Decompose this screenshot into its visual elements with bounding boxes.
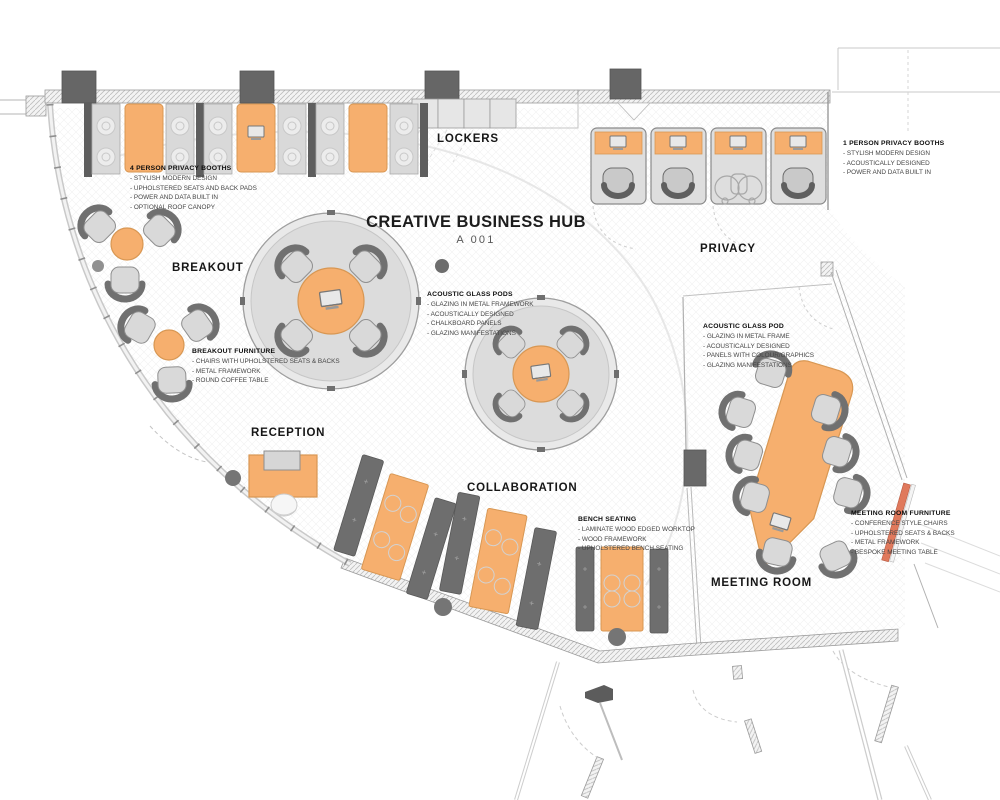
annotation-bench-seating: BENCH SEATING LAMINATE WOOD EDGED WORKTO… — [578, 515, 695, 554]
privacy-booth — [771, 128, 826, 204]
room-label-meeting-room: MEETING ROOM — [711, 577, 812, 589]
door-hardware — [585, 685, 613, 703]
annotation-meeting-room-furniture: MEETING ROOM FURNITURE CONFERENCE STYLE … — [851, 509, 955, 558]
coffee-table — [154, 330, 184, 360]
booth-chair — [783, 168, 813, 196]
privacy-booth-accessible — [711, 128, 766, 204]
bench-table-group — [576, 547, 668, 633]
column — [240, 71, 274, 103]
annotation-privacy-booths-1: 1 PERSON PRIVACY BOOTHS STYLISH MODERN D… — [843, 139, 944, 178]
column — [610, 69, 641, 99]
door-leaf — [745, 719, 762, 753]
room-label-lockers: LOCKERS — [437, 133, 499, 145]
column — [608, 628, 626, 646]
door-hinge — [732, 666, 742, 680]
side-table — [92, 260, 104, 272]
booth-table — [349, 104, 387, 172]
door-leaf — [875, 685, 899, 743]
column — [225, 470, 241, 486]
room-label-privacy: PRIVACY — [700, 243, 756, 255]
plan-title-block: CREATIVE BUSINESS HUB A 001 — [326, 213, 626, 246]
room-label-breakout: BREAKOUT — [172, 262, 244, 274]
annotation-privacy-booths-4: 4 PERSON PRIVACY BOOTHS STYLISH MODERN D… — [130, 164, 257, 213]
column — [435, 259, 449, 273]
door-leaf — [581, 757, 603, 799]
reception-monitor — [264, 451, 300, 470]
wall-pier — [684, 450, 706, 486]
booth-chair — [663, 168, 693, 196]
coffee-table — [111, 228, 143, 260]
annotation-breakout-furniture: BREAKOUT FURNITURE CHAIRS WITH UPHOLSTER… — [192, 347, 340, 386]
booth-table — [125, 104, 163, 172]
column — [62, 71, 96, 103]
annotation-acoustic-glass-pod: ACOUSTIC GLASS POD GLAZING IN METAL FRAM… — [703, 322, 814, 371]
room-label-reception: RECEPTION — [251, 427, 325, 439]
booth-chair — [603, 168, 633, 196]
room-label-collaboration: COLLABORATION — [467, 482, 577, 494]
annotation-acoustic-glass-pods: ACOUSTIC GLASS PODS GLAZING IN METAL FRA… — [427, 290, 534, 339]
floor-plan-drawing — [0, 0, 1000, 800]
privacy-booth — [591, 128, 646, 204]
column — [425, 71, 459, 103]
page-title: CREATIVE BUSINESS HUB — [326, 213, 626, 232]
drawing-code: A 001 — [326, 234, 626, 246]
privacy-booth — [651, 128, 706, 204]
floor-plan: CREATIVE BUSINESS HUB A 001 LOCKERS PRIV… — [0, 0, 1000, 800]
column — [434, 598, 452, 616]
